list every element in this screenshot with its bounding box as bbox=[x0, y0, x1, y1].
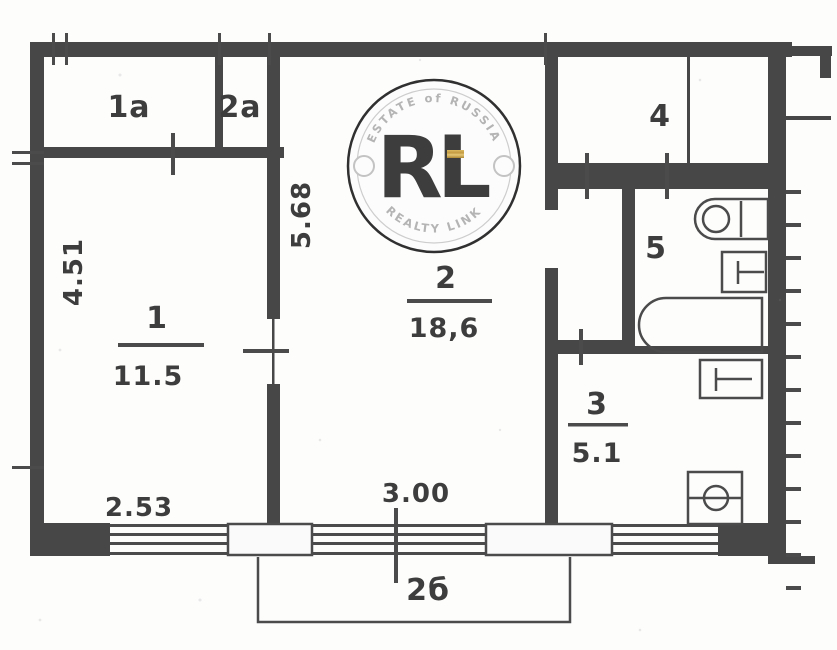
dim-room1-width: 2.53 bbox=[105, 493, 173, 523]
door-jamb-top bbox=[545, 208, 558, 210]
label-room1-area: 11.5 bbox=[113, 361, 184, 392]
fraction-rule-room1 bbox=[118, 343, 204, 347]
wash-basin-icon bbox=[722, 252, 766, 292]
wall-bottom-left-segment bbox=[30, 523, 110, 556]
wall-top-right-stub-down bbox=[820, 56, 831, 78]
watermark-right-dot bbox=[494, 156, 514, 176]
wall-top bbox=[30, 42, 792, 57]
wall-room1-room2-upper bbox=[267, 57, 280, 319]
wall-bottom-right-stub bbox=[768, 556, 815, 564]
wall-room4-niche bbox=[687, 57, 690, 163]
wall-right-adjacent-line bbox=[786, 116, 831, 120]
label-room1-number: 1 bbox=[146, 301, 168, 336]
wall-closets-bottom bbox=[44, 147, 284, 158]
label-room5: 5 bbox=[645, 231, 667, 266]
wall-bottom-right-segment bbox=[718, 523, 768, 556]
wall-hall-bottom bbox=[545, 163, 768, 189]
wall-right bbox=[768, 57, 786, 563]
wall-top-right-stub bbox=[786, 46, 832, 56]
label-room3-number: 3 bbox=[586, 387, 608, 422]
wall-room2-right-lower bbox=[545, 270, 558, 523]
window-pier-1 bbox=[228, 524, 312, 555]
balcony-door-opening bbox=[486, 524, 612, 555]
wall-bath-left bbox=[622, 189, 635, 352]
window-room1 bbox=[110, 524, 228, 555]
door-tick-corridor bbox=[585, 153, 589, 199]
watermark-monogram: RL bbox=[376, 118, 489, 218]
dim-room2-width: 3.00 bbox=[382, 479, 450, 509]
door-jamb-bottom bbox=[545, 268, 558, 270]
door-tick-bath bbox=[665, 153, 669, 199]
stove-icon bbox=[688, 472, 742, 524]
label-closet2: 2а bbox=[218, 90, 261, 125]
door-tick-kitchen bbox=[579, 329, 583, 365]
wall-room2-right-upper bbox=[545, 165, 558, 208]
label-balcony: 2б bbox=[406, 573, 450, 608]
watermark-left-dot bbox=[354, 156, 374, 176]
window-kitchen bbox=[612, 524, 718, 555]
window-room2 bbox=[312, 524, 486, 555]
bathtub-icon bbox=[639, 298, 762, 352]
dimension-tick-300 bbox=[394, 508, 398, 583]
floor-plan-drawing: 1а 2а 4 5 2 18,6 1 11.5 3 5.1 2б 5.68 4.… bbox=[0, 0, 837, 650]
door-tick-room1 bbox=[243, 349, 289, 353]
fraction-rule-room3 bbox=[568, 423, 628, 427]
dim-room2-height: 5.68 bbox=[287, 181, 317, 249]
toilet-icon bbox=[695, 199, 768, 239]
label-room3-area: 5.1 bbox=[572, 438, 623, 469]
right-hatch-ticks bbox=[786, 190, 801, 590]
label-room4: 4 bbox=[649, 99, 671, 134]
watermark-monogram-bar bbox=[447, 150, 464, 158]
label-closet1: 1а bbox=[107, 90, 150, 125]
watermark-logo: ESTATE of RUSSIA REALTY LINK RL bbox=[348, 80, 520, 252]
wall-left bbox=[30, 42, 44, 534]
kitchen-sink-icon bbox=[700, 360, 762, 398]
floor-plan-page: 1а 2а 4 5 2 18,6 1 11.5 3 5.1 2б 5.68 4.… bbox=[0, 0, 837, 650]
wall-kitchen-top bbox=[545, 340, 635, 354]
label-room2-area: 18,6 bbox=[409, 313, 480, 344]
fraction-rule-room2 bbox=[407, 299, 492, 303]
wall-room1-room2-lower bbox=[267, 384, 280, 523]
label-room2-number: 2 bbox=[435, 261, 457, 296]
dim-room1-height: 4.51 bbox=[59, 238, 89, 306]
windows bbox=[110, 524, 718, 555]
door-tick-closet1 bbox=[171, 133, 175, 175]
wall-room4-left bbox=[545, 57, 558, 163]
